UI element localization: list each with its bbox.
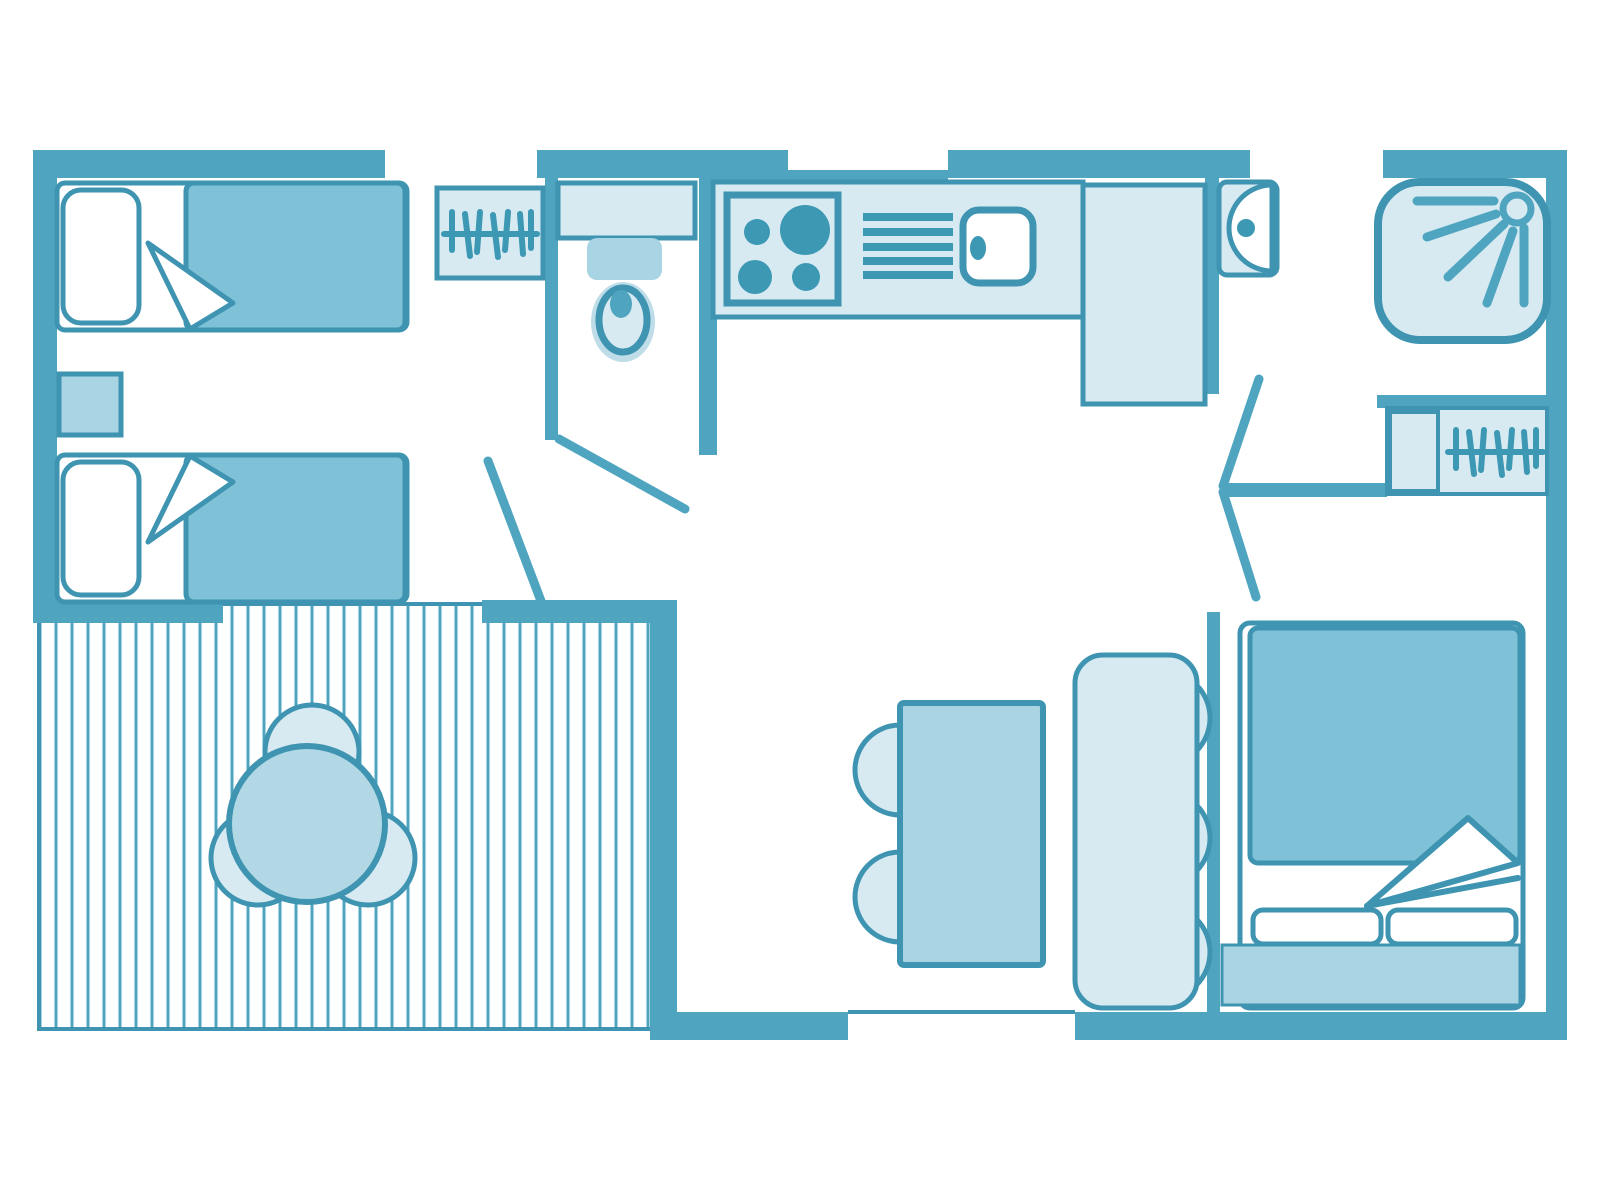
terrace-round-table [229, 746, 385, 902]
kitchen [713, 182, 1205, 404]
terrace [37, 603, 677, 1030]
washbasin [1219, 182, 1277, 275]
kitchen-sink [963, 210, 1033, 283]
wall-bottom-left [650, 1012, 848, 1040]
fridge-cabinet [1083, 185, 1205, 404]
dining-chair [855, 852, 900, 942]
pillow [1388, 910, 1516, 944]
master-bedroom [1222, 623, 1523, 1008]
twin-bedroom [57, 183, 543, 602]
doors [488, 379, 1259, 601]
door-wc [559, 439, 685, 509]
floor-plan-canvas [0, 0, 1600, 1200]
pillow [63, 462, 139, 595]
dining-table [900, 703, 1043, 965]
wardrobe-master [1387, 408, 1547, 494]
wall-top-1 [33, 150, 385, 178]
shower [1378, 182, 1547, 340]
wall-masterbedroom-door [1220, 483, 1387, 497]
floor-plan [0, 0, 1600, 1200]
wall-bottom-right [1075, 1012, 1567, 1040]
bench-seat [1075, 655, 1197, 1008]
dining-set [855, 703, 1043, 965]
nightstand [59, 374, 121, 435]
dining-chair [855, 725, 900, 815]
wc-room [558, 183, 695, 362]
bench [1075, 655, 1210, 1008]
wall-terrace-top [482, 600, 677, 623]
toilet-tank [587, 238, 662, 280]
wall-terrace-right [650, 600, 677, 1033]
wardrobe-twin [437, 188, 543, 278]
single-bed-2 [57, 455, 407, 602]
door-bedroom1 [488, 461, 541, 601]
shower-room [1219, 182, 1547, 494]
pillow [63, 190, 139, 323]
wall-top-4 [1383, 150, 1567, 178]
single-bed-1 [57, 183, 407, 330]
toilet-drain [610, 290, 632, 318]
double-bed [1222, 623, 1523, 1008]
shower-head-icon [1503, 195, 1531, 223]
door-master-upper-leaf [1223, 379, 1259, 486]
toilet-cistern [558, 183, 695, 238]
washbasin-drain [1237, 219, 1255, 237]
wardrobe-shelf [1390, 412, 1438, 491]
cooktop-burners-icon [727, 195, 838, 303]
wall-top-3 [948, 150, 1250, 178]
living-dining [855, 655, 1210, 1008]
door-master-lower-leaf [1223, 492, 1256, 597]
pillow [1253, 910, 1381, 944]
wall-left [33, 150, 57, 623]
faucet-icon [970, 236, 986, 260]
headboard-shelf [1222, 945, 1520, 1005]
